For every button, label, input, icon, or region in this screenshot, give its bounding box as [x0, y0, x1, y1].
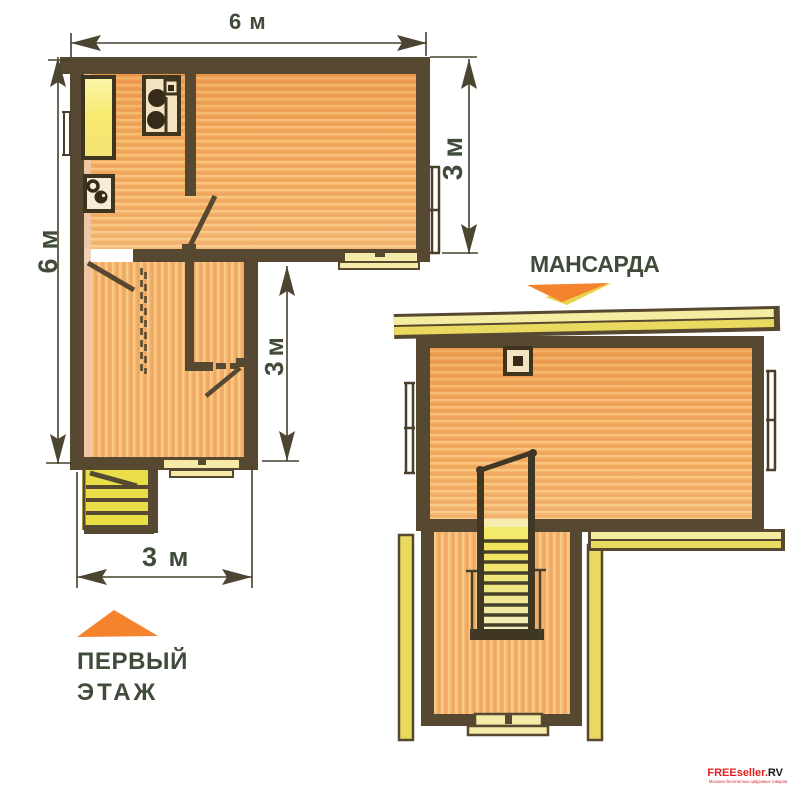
svg-text:Магазин бесплатных цифровых то: Магазин бесплатных цифровых товаров [709, 779, 788, 784]
svg-text:3м: 3м [259, 332, 289, 376]
svg-text:FREEseller.RV: FREEseller.RV [707, 767, 783, 779]
svg-text:3м: 3м [437, 130, 468, 180]
svg-text:6м: 6м [33, 221, 63, 274]
svg-text:ЭТАЖ: ЭТАЖ [77, 679, 158, 706]
svg-text:МАНСАРДА: МАНСАРДА [530, 251, 660, 277]
svg-text:ПЕРВЫЙ: ПЕРВЫЙ [77, 647, 188, 675]
svg-text:6 м: 6 м [229, 9, 267, 34]
svg-text:3 м: 3 м [142, 542, 191, 572]
